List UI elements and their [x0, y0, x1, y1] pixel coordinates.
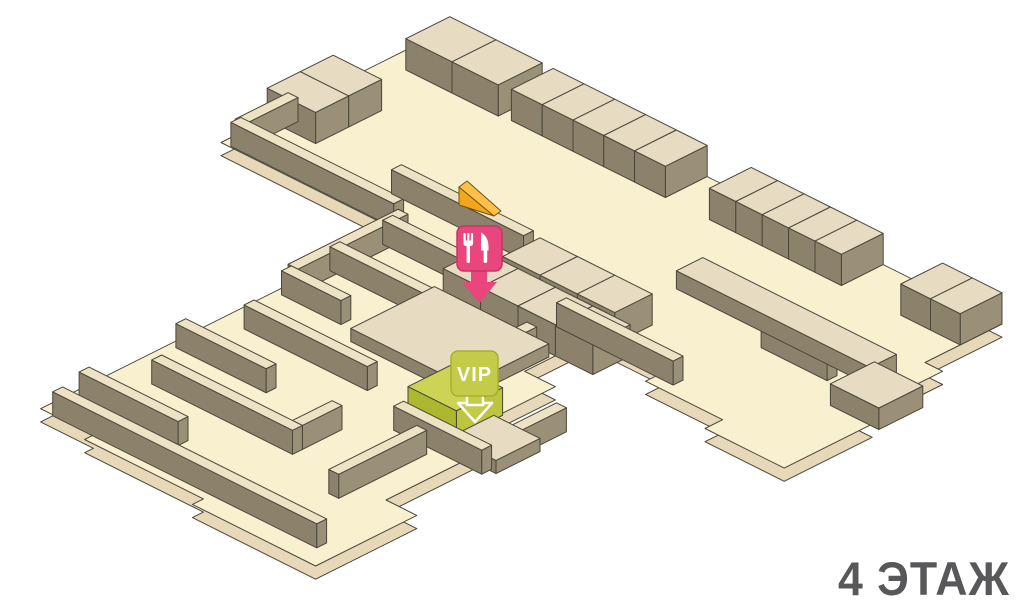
vip-marker-label: VIP — [457, 364, 492, 386]
floor-plan-scene — [41, 17, 1002, 580]
food-court-marker-box — [457, 226, 502, 271]
floor-plan-stage: VIP 4 ЭТАЖ — [0, 0, 1024, 612]
floor-title: 4 ЭТАЖ — [838, 551, 1010, 606]
floor-plan: VIP — [0, 0, 1024, 612]
